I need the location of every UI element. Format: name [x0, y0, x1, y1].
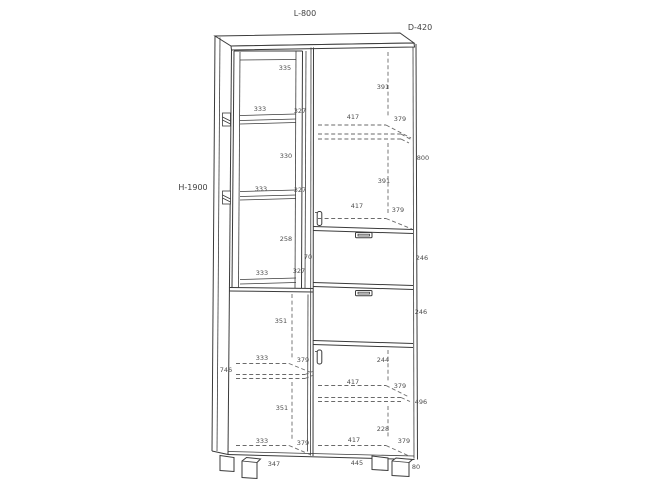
center-post [305, 48, 314, 457]
cabinet-line-drawing [0, 0, 648, 486]
cabinet-legs [220, 456, 413, 479]
overall-height-label: H-1900 [178, 184, 207, 192]
dim-label: 379 [297, 357, 309, 364]
overall-width-label: L-800 [294, 10, 316, 18]
dim-label: 391 [378, 178, 390, 185]
dim-label: 391 [377, 84, 389, 91]
dim-label: 379 [394, 116, 406, 123]
dim-label: 347 [268, 461, 280, 468]
overall-depth-label: D-420 [408, 24, 432, 32]
dim-label: 327 [293, 268, 305, 275]
right-column-dividers [314, 227, 414, 348]
dim-label: 327 [294, 187, 306, 194]
left-divider [230, 288, 314, 293]
dim-label: 333 [254, 106, 266, 113]
dim-label: 333 [256, 270, 268, 277]
left-side-panel [212, 36, 232, 455]
top-panel [215, 33, 415, 50]
dim-label: 246 [415, 309, 427, 316]
dim-label: 330 [280, 153, 292, 160]
dashed-guides-right-bottom [318, 350, 410, 456]
dim-label: 333 [255, 186, 267, 193]
dim-label: 351 [276, 405, 288, 412]
dim-label: 379 [398, 438, 410, 445]
dim-label: 333 [256, 355, 268, 362]
dim-label: 417 [347, 379, 359, 386]
dim-label: 800 [417, 155, 429, 162]
dim-label: 445 [351, 460, 363, 467]
dim-label: 351 [275, 318, 287, 325]
dim-label: 379 [297, 440, 309, 447]
glass-door-section [232, 51, 303, 288]
dim-label: 244 [377, 357, 389, 364]
dim-label: 327 [294, 108, 306, 115]
dim-label: 228 [377, 426, 389, 433]
dim-label: 379 [392, 207, 404, 214]
dim-label: 379 [394, 383, 406, 390]
dim-label: 417 [347, 114, 359, 121]
hinge-icon [223, 113, 231, 204]
dim-label: 333 [256, 438, 268, 445]
dim-label: 417 [351, 203, 363, 210]
dim-label: 746 [220, 367, 232, 374]
dim-label: 417 [348, 437, 360, 444]
dim-label: 246 [416, 255, 428, 262]
dim-label: 258 [280, 236, 292, 243]
dim-label: 496 [415, 399, 427, 406]
dim-label: 80 [412, 464, 420, 471]
dim-label: 335 [279, 65, 291, 72]
dashed-guides-right-top [318, 52, 412, 229]
technical-drawing-canvas: L-800 D-420 H-1900 335333327330333327258… [0, 0, 648, 486]
drawer-handle-icon [356, 233, 373, 296]
dim-label: 70 [304, 254, 312, 261]
